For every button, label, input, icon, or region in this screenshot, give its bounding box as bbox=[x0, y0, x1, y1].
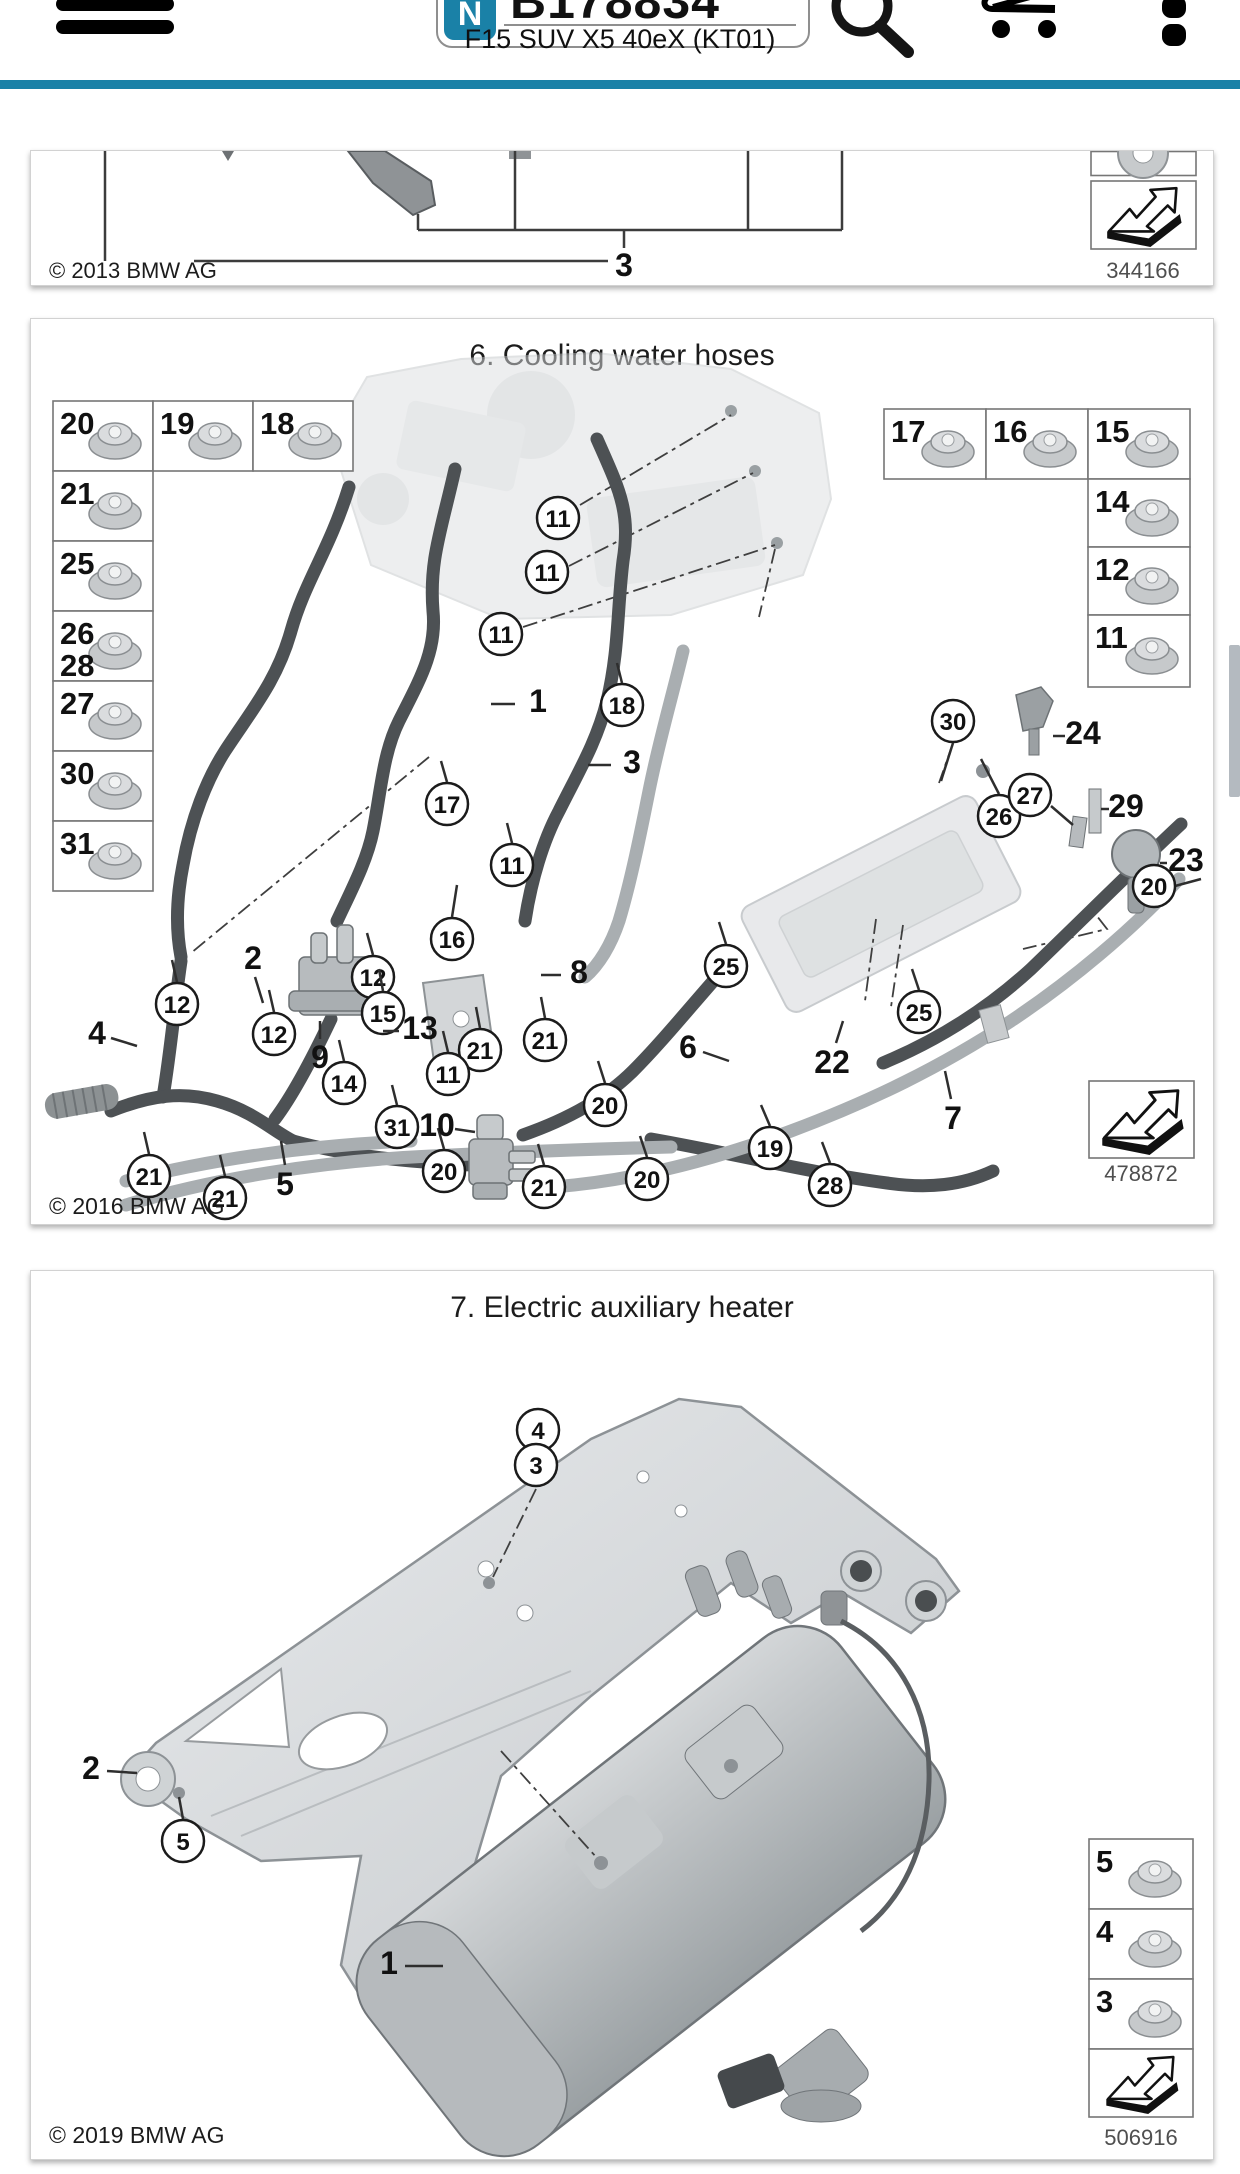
part-label-3[interactable]: 3 bbox=[623, 744, 641, 780]
doc-number: 506916 bbox=[1104, 2125, 1177, 2150]
part-fragment bbox=[348, 151, 435, 215]
part-label-4[interactable]: 4 bbox=[88, 1015, 106, 1051]
callout-number: 11 bbox=[488, 622, 513, 649]
callout-number: 4 bbox=[531, 1418, 545, 1445]
part-label-29[interactable]: 29 bbox=[1108, 788, 1144, 824]
part-label-22[interactable]: 22 bbox=[814, 1044, 850, 1080]
callout-3[interactable]: 3 bbox=[615, 247, 633, 283]
legend-number: 30 bbox=[60, 756, 94, 791]
copyright: © 2019 BMW AG bbox=[49, 2122, 224, 2148]
legend-number: 28 bbox=[60, 648, 94, 683]
callout-number: 28 bbox=[817, 1173, 844, 1200]
vehicle-subtitle: F15 SUV X5 40eX (KT01) bbox=[0, 24, 1240, 55]
callout-number: 11 bbox=[435, 1062, 460, 1089]
callout-number: 11 bbox=[545, 506, 570, 533]
part-label-2[interactable]: 2 bbox=[244, 940, 262, 976]
callout-number: 27 bbox=[1017, 783, 1044, 810]
callout-number: 18 bbox=[609, 693, 636, 720]
legend-number: 16 bbox=[993, 414, 1027, 449]
legend-number: 21 bbox=[60, 476, 94, 511]
section-card-previous[interactable]: 3 © 2013 BMW AG 344166 bbox=[30, 150, 1214, 286]
diagram-cooling-water-hoses[interactable]: 6. Cooling water hoses bbox=[31, 319, 1213, 1224]
callout-number: 20 bbox=[431, 1159, 458, 1186]
part-number-value: B178834 bbox=[510, 0, 720, 26]
engine-ghost bbox=[331, 353, 831, 619]
callout-number: 30 bbox=[940, 709, 967, 736]
part-label-2[interactable]: 2 bbox=[82, 1750, 100, 1786]
callout-number: 12 bbox=[261, 1022, 288, 1049]
callout-number: 16 bbox=[439, 927, 466, 954]
callout-number: 17 bbox=[434, 792, 461, 819]
part-label-5[interactable]: 5 bbox=[276, 1166, 294, 1202]
callout-number: 11 bbox=[499, 853, 524, 880]
callout-number: 12 bbox=[164, 992, 191, 1019]
part-label-1[interactable]: 1 bbox=[529, 683, 547, 719]
copyright: © 2013 BMW AG bbox=[49, 258, 217, 283]
section-title: 7. Electric auxiliary heater bbox=[450, 1291, 793, 1324]
header-accent-bar bbox=[0, 80, 1240, 89]
legend-number: 17 bbox=[891, 414, 925, 449]
diagram-previous-section[interactable]: 3 © 2013 BMW AG 344166 bbox=[31, 151, 1213, 285]
callout-number: 11 bbox=[534, 560, 559, 587]
part-label-8[interactable]: 8 bbox=[570, 954, 588, 990]
legend-number: 26 bbox=[60, 616, 94, 651]
callout-number: 21 bbox=[532, 1028, 559, 1055]
callout-number: 19 bbox=[757, 1136, 784, 1163]
legend-number: 15 bbox=[1095, 414, 1129, 449]
legend-number: 31 bbox=[60, 826, 94, 861]
copyright: © 2016 BMW AG bbox=[49, 1193, 224, 1219]
legend-number: 5 bbox=[1096, 1844, 1113, 1879]
callout-number: 15 bbox=[370, 1001, 397, 1028]
part-label-10[interactable]: 10 bbox=[419, 1107, 455, 1143]
callout-number: 20 bbox=[634, 1167, 661, 1194]
part-label-9[interactable]: 9 bbox=[311, 1039, 329, 1075]
callout-number: 14 bbox=[331, 1071, 358, 1098]
callout-number: 5 bbox=[176, 1829, 189, 1856]
legend-number: 18 bbox=[260, 406, 294, 441]
doc-number: 344166 bbox=[1106, 258, 1179, 283]
section-card-cooling-water-hoses[interactable]: 6. Cooling water hoses bbox=[30, 318, 1214, 1225]
scrollbar-thumb[interactable] bbox=[1229, 645, 1240, 797]
legend-number: 27 bbox=[60, 686, 94, 721]
callout-number: 3 bbox=[529, 1453, 542, 1480]
callout-number: 21 bbox=[531, 1175, 558, 1202]
callout-number: 20 bbox=[592, 1093, 619, 1120]
legend-number: 14 bbox=[1095, 484, 1130, 519]
callout-number: 25 bbox=[906, 1000, 933, 1027]
callout-number: 20 bbox=[1141, 874, 1168, 901]
diagram-electric-auxiliary-heater[interactable]: 7. Electric auxiliary heater bbox=[31, 1271, 1213, 2159]
legend-number: 11 bbox=[1095, 620, 1128, 655]
part-label-23[interactable]: 23 bbox=[1168, 842, 1204, 878]
callout-number: 21 bbox=[136, 1164, 163, 1191]
legend-number: 20 bbox=[60, 406, 94, 441]
legend-number: 12 bbox=[1095, 552, 1129, 587]
doc-number: 478872 bbox=[1104, 1161, 1177, 1186]
bracket-29 bbox=[1089, 789, 1101, 833]
part-label-7[interactable]: 7 bbox=[944, 1100, 962, 1136]
callout-number: 21 bbox=[467, 1038, 494, 1065]
part-label-1[interactable]: 1 bbox=[380, 1945, 398, 1981]
callout-number: 25 bbox=[713, 954, 740, 981]
legend-number: 25 bbox=[60, 546, 94, 581]
part-label-13[interactable]: 13 bbox=[402, 1010, 438, 1046]
bracket-24 bbox=[1016, 687, 1053, 731]
part-label-6[interactable]: 6 bbox=[679, 1029, 697, 1065]
legend-number: 19 bbox=[160, 406, 194, 441]
callout-number: 31 bbox=[384, 1115, 411, 1142]
legend-number: 4 bbox=[1096, 1914, 1114, 1949]
section-card-electric-auxiliary-heater[interactable]: 7. Electric auxiliary heater bbox=[30, 1270, 1214, 2160]
callout-number: 26 bbox=[986, 804, 1013, 831]
part-label-24[interactable]: 24 bbox=[1065, 715, 1101, 751]
legend-number: 3 bbox=[1096, 1984, 1113, 2019]
